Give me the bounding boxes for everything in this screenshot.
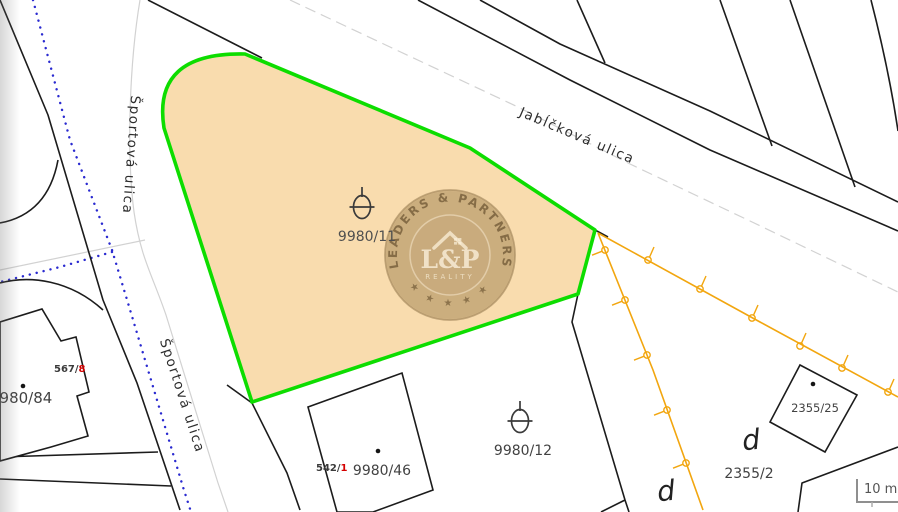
parcel-label-2355-2: 2355/2 [724, 466, 773, 482]
highlighted-parcel-9980-11 [163, 54, 595, 402]
side-street-centerline [0, 240, 145, 270]
parcel-label-2355-25: 2355/25 [791, 401, 839, 415]
boundary-to-parcel [148, 0, 262, 58]
boundary-corner-stub [595, 230, 608, 237]
road-corner-curve-south [0, 280, 103, 310]
landuse-symbol [508, 401, 533, 433]
road-corner-curve-north [0, 160, 58, 223]
building-9980-46 [308, 373, 433, 512]
parcel-label-542-1-suffix: 1 [341, 463, 348, 474]
parcel-label-567-8-suffix: 8 [79, 364, 86, 375]
parcel-label-9980-46: 9980/46 [353, 463, 411, 479]
d-marker: d [740, 423, 761, 458]
scale-bar-label: 10 m [864, 482, 897, 497]
building-dot [376, 449, 381, 454]
d-marker: d [655, 474, 676, 509]
map-geometry [0, 0, 898, 512]
building-9980-84 [0, 309, 89, 461]
building-dot [811, 382, 816, 387]
boundary-parcel-south [227, 385, 300, 510]
road-band-north-edge [480, 0, 898, 202]
fence-line-steep [598, 233, 703, 510]
boundary-parcel-east [572, 294, 629, 512]
parcel-label-542-1-prefix: 542/ [316, 463, 341, 474]
parcel-label-9980-84: 9980/84 [0, 389, 52, 407]
strip-line-4 [871, 0, 898, 131]
parcel-label-567-8: 567/8 [54, 364, 86, 375]
fence-line-shallow [598, 233, 898, 397]
parcel-label-567-8-prefix: 567/ [54, 364, 79, 375]
boundary-bottom-left-b [0, 479, 171, 486]
parcel-label-542-1: 542/1 [316, 463, 348, 474]
cadastral-map[interactable]: LEADERS & PARTNERS ★ ★ ★ ★ ★ L&P REALITY… [0, 0, 898, 512]
building-dot [21, 384, 26, 389]
parcel-label-9980-11: 9980/11 [338, 229, 396, 245]
parcel-label-9980-12: 9980/12 [494, 443, 552, 459]
strip-line-2 [720, 0, 772, 146]
strip-line-3 [790, 0, 855, 187]
